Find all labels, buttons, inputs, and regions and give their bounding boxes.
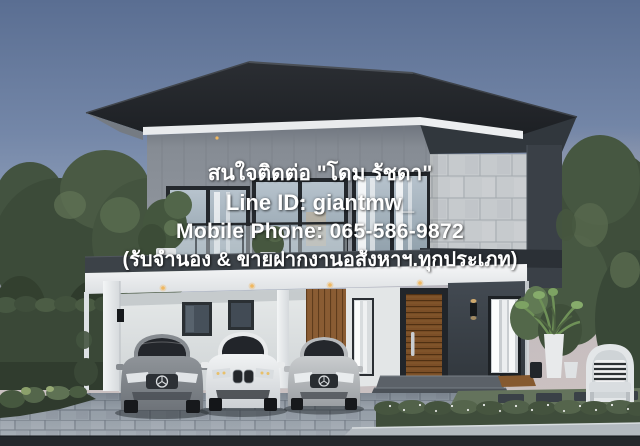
listing-photo: สนใจติดต่อ "โดม รัชดา" Line ID: giantmw_…: [0, 0, 640, 446]
tall-planter: [544, 334, 564, 378]
road: [0, 436, 640, 446]
wall-lamp: [470, 303, 477, 316]
small-pot: [564, 362, 578, 378]
stone-clad-wing: [420, 116, 577, 288]
dark-vase: [530, 362, 542, 378]
wicker-chair: [586, 344, 634, 404]
house-rendering-scene: [0, 0, 640, 446]
entrance: [346, 281, 536, 397]
